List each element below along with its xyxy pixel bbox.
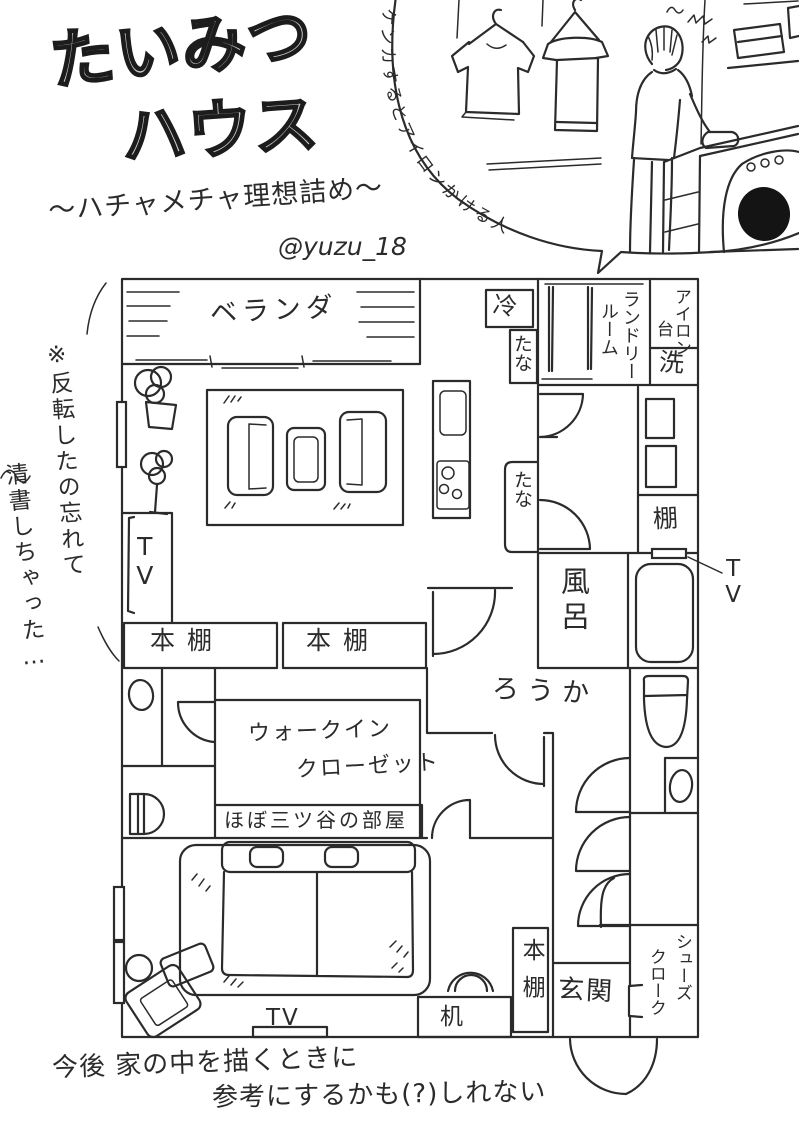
shelf-boxes-icon	[728, 1, 799, 68]
window-bedroom-2	[114, 942, 124, 1003]
walk-in-closet-label-1: ウォークイン	[248, 717, 393, 745]
sliding-door-marks	[136, 356, 391, 368]
toilet2-icon	[127, 678, 155, 711]
desk-label: 机	[440, 1005, 463, 1029]
pillow-icon	[250, 847, 283, 867]
bath-label: 風呂	[558, 566, 588, 636]
bookshelf-right-label: 本棚	[306, 628, 380, 654]
bedroom-rug	[180, 845, 430, 995]
bath-tv-callout-line	[688, 557, 722, 573]
window-bedroom-1	[114, 887, 124, 940]
refrigerator-label: 冷	[491, 292, 518, 320]
bathtub-icon	[636, 564, 693, 662]
shoe-closet-label-1: シューズ	[672, 933, 690, 1001]
shelf-upper-label: たな	[511, 334, 531, 372]
anger-marks-icon	[667, 7, 716, 43]
plant2-icon	[141, 451, 172, 514]
toilet-icon	[644, 676, 688, 747]
shelf-lower-label: たな	[511, 470, 531, 508]
hanging-shirt-icon	[452, 10, 534, 120]
living-room-furniture	[117, 367, 426, 668]
armchair-seat	[123, 962, 203, 1039]
ironing-board-label-1: アイロン	[671, 288, 689, 356]
sink2-icon	[130, 794, 164, 834]
side-table-icon	[126, 955, 152, 981]
washroom-units	[646, 399, 676, 487]
washing-machine-icon	[663, 126, 799, 252]
hallway-label: ろうか	[491, 675, 597, 709]
desk-box	[418, 997, 511, 1037]
laundry-room-label-1: ランドリー	[620, 290, 639, 380]
bookshelf-left-label: 本棚	[150, 628, 224, 654]
shoe-closet-label-2: クローク	[646, 948, 664, 1016]
washbasin-icon	[668, 769, 694, 804]
entrance-label: 玄関	[557, 977, 614, 1007]
clothes-rails	[549, 287, 592, 371]
tv-living-label: TV	[131, 532, 157, 590]
tv-bath-label: TV	[721, 556, 745, 608]
bubble-caption-text: ケンカするとアイロンかける人	[377, 8, 515, 239]
shelf-kanji-label: 棚	[652, 505, 678, 533]
bedroom-furniture	[114, 842, 548, 1040]
toilet-area	[644, 676, 694, 803]
ironing-board-label-2: 台	[653, 320, 671, 337]
double-beds	[222, 872, 413, 977]
plant-icon	[135, 367, 176, 429]
artist-handle: @yuzu_18	[278, 234, 407, 260]
living-rug	[207, 390, 403, 525]
inner-walls	[122, 279, 698, 1037]
desk-chair-icon	[448, 973, 493, 991]
kitchen-counter	[433, 381, 470, 518]
illustration-page: ケンカするとアイロンかける人	[0, 0, 799, 1135]
window-living	[117, 402, 126, 467]
kitchen-area	[433, 290, 537, 552]
room-note-label: ほぼ三ツ谷の部屋	[224, 810, 408, 831]
bath-tv-icon	[652, 549, 686, 558]
laundry-room-label-2: ルーム	[598, 302, 617, 356]
pillow-icon-2	[325, 847, 358, 867]
sofa-left-icon	[228, 417, 273, 495]
outer-walls	[122, 279, 698, 1037]
ironing-scene	[452, 0, 799, 252]
washing-machine-label: 洗	[658, 349, 685, 377]
hanging-garment-icon	[543, 0, 608, 131]
floor-plan	[114, 279, 722, 1094]
sink-icon	[440, 391, 466, 435]
balcony-label: ベランダ	[209, 294, 338, 329]
tv-bedroom-label: TV	[266, 1006, 300, 1030]
person-ironing	[630, 7, 738, 252]
bath-area	[636, 549, 722, 662]
left-utility-rooms	[127, 678, 164, 834]
bottom-note-line2: 参考にするかも(?)しれない	[212, 1079, 547, 1112]
bookshelf-bedroom-label: 本棚	[519, 938, 543, 1012]
sofa-right-icon	[340, 412, 386, 492]
page-title-line2: ハウス	[120, 91, 322, 172]
